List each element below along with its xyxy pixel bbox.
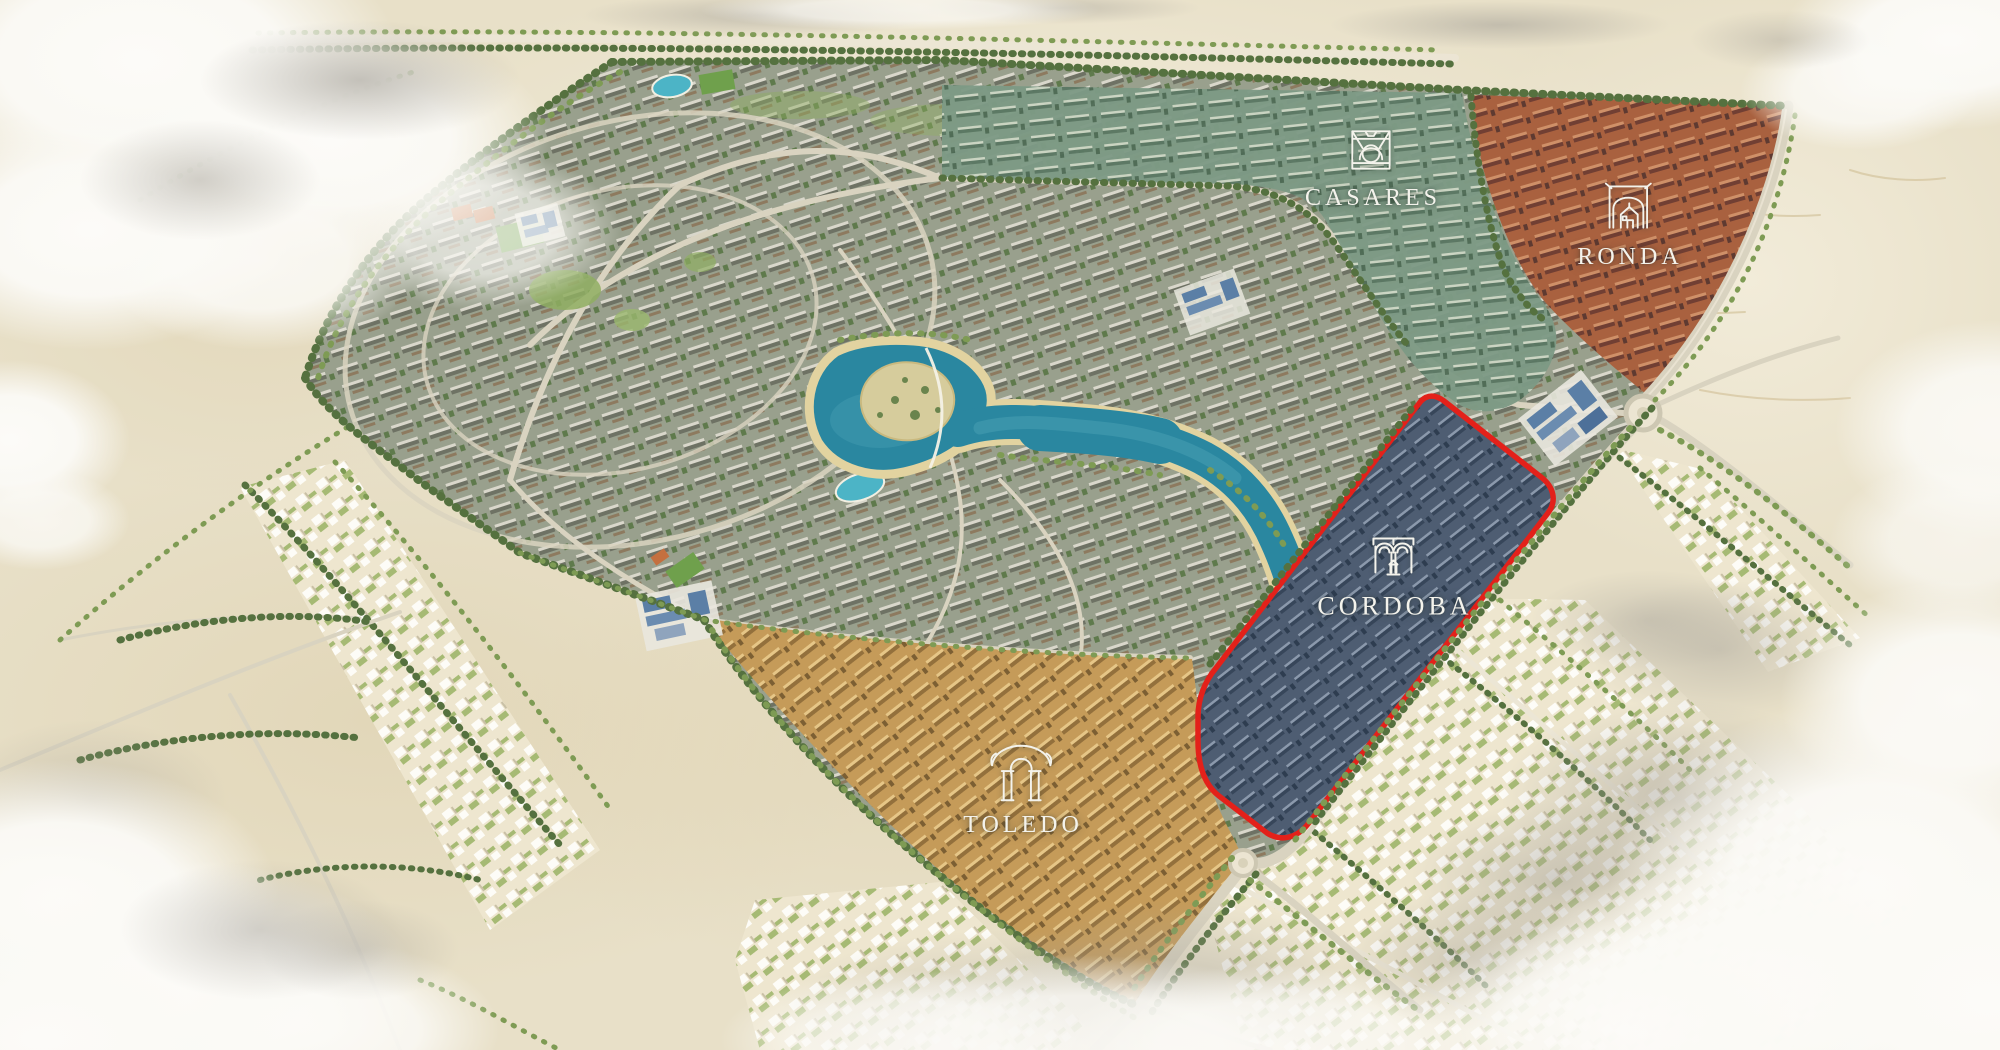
district-toledo[interactable]: TOLEDO [959,741,1083,839]
district-label-ronda: RONDA [1573,244,1682,271]
cordoba-double-arch-icon [1363,525,1423,585]
masterplan-map: CASARES RONDA CORDOBA [0,0,2000,1050]
district-casares[interactable]: CASARES [1301,122,1441,212]
district-ronda[interactable]: RONDA [1573,177,1682,271]
map-canvas [0,0,2000,1050]
district-cordoba[interactable]: CORDOBA [1313,525,1472,622]
toledo-horseshoe-arch-icon [986,741,1056,805]
district-label-casares: CASARES [1301,185,1441,212]
ronda-house-arch-icon [1598,177,1658,237]
district-label-cordoba: CORDOBA [1313,592,1472,622]
district-label-toledo: TOLEDO [959,812,1083,839]
casares-gate-icon [1343,122,1399,178]
